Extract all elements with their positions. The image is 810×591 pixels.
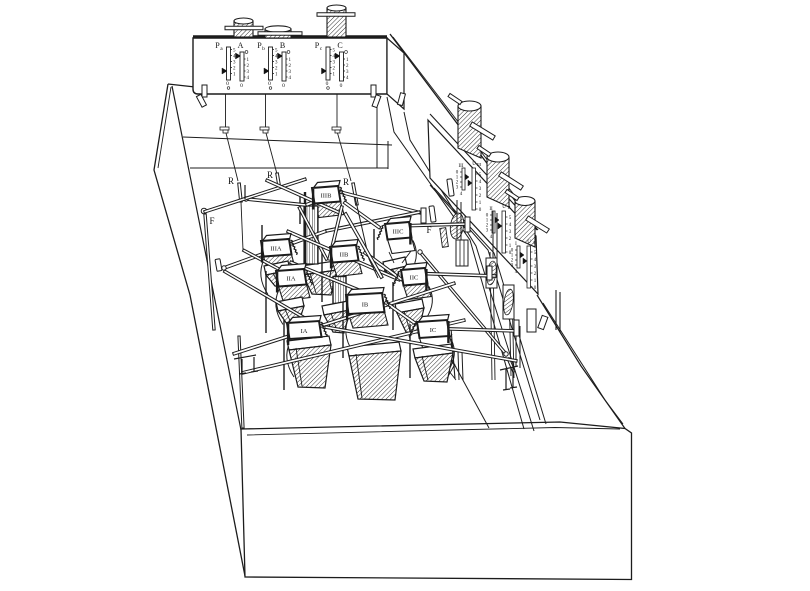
svg-text:A: A: [238, 41, 244, 50]
svg-text:IIIC: IIIC: [393, 229, 404, 236]
svg-text:III: III: [477, 162, 482, 167]
svg-text:b: b: [262, 46, 265, 52]
svg-text:IB: IB: [362, 301, 369, 308]
svg-text:R: R: [228, 176, 234, 186]
svg-text:0: 0: [340, 83, 343, 89]
svg-text:0: 0: [240, 83, 243, 89]
svg-text:IIIB: IIIB: [321, 193, 332, 200]
svg-text:II: II: [508, 205, 511, 210]
svg-text:R: R: [267, 170, 273, 180]
svg-text:IIB: IIB: [340, 252, 349, 259]
svg-text:R: R: [343, 177, 349, 187]
svg-text:IC: IC: [430, 327, 437, 334]
svg-text:0: 0: [268, 81, 271, 87]
svg-text:U: U: [472, 162, 476, 167]
svg-text:0: 0: [326, 81, 329, 87]
svg-text:U: U: [502, 205, 506, 210]
svg-text:IA: IA: [301, 328, 308, 335]
svg-text:IIC: IIC: [410, 275, 419, 282]
svg-text:C: C: [337, 41, 342, 50]
svg-text:F: F: [209, 216, 214, 226]
svg-text:0: 0: [282, 83, 285, 89]
svg-text:IIIA: IIIA: [270, 246, 281, 253]
svg-text:U: U: [527, 240, 531, 245]
svg-text:IIA: IIA: [286, 276, 295, 283]
svg-text:B: B: [280, 41, 285, 50]
svg-text:0: 0: [226, 81, 229, 87]
